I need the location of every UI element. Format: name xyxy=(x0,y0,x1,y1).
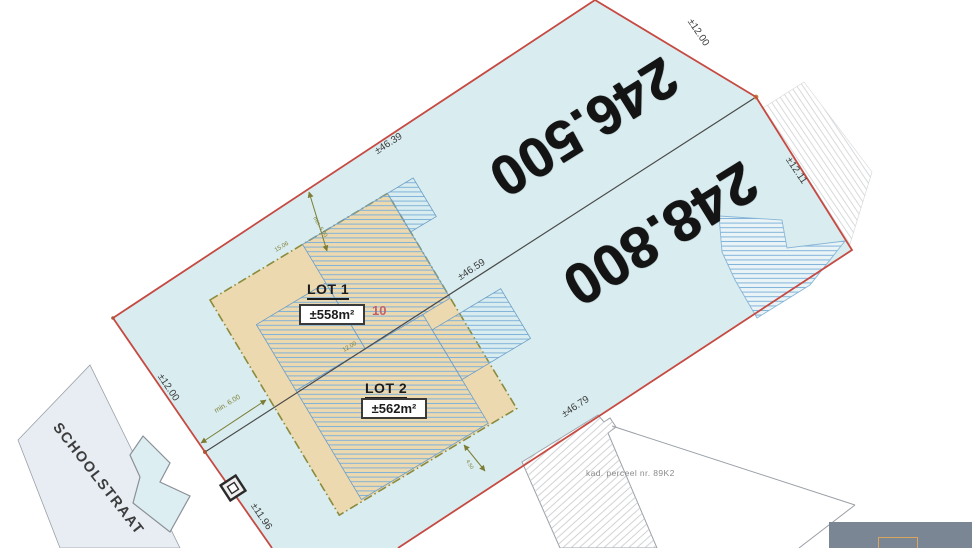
neighbor-building-extension-line-1 xyxy=(612,426,855,505)
inset-building-outline xyxy=(878,537,918,548)
plan-drawing: min. 5.00 min. 6.00 4.50 15.06 12.00 ±46… xyxy=(0,0,972,548)
cadastral-plan-scan: min. 5.00 min. 6.00 4.50 15.06 12.00 ±46… xyxy=(0,0,972,548)
dim-edge-ne: ±12.00 xyxy=(685,17,711,49)
lot1-label: LOT 1 xyxy=(307,281,349,300)
lot1-area-box: ±558m² xyxy=(299,304,365,325)
lot1-house-number: 10 xyxy=(372,303,386,318)
lot2-area-box: ±562m² xyxy=(361,398,427,419)
photo-inset-corner xyxy=(829,522,972,548)
neighbor-parcel-caption: kad. perceel nr. 89K2 xyxy=(586,468,675,478)
lot2-label: LOT 2 xyxy=(365,380,407,399)
